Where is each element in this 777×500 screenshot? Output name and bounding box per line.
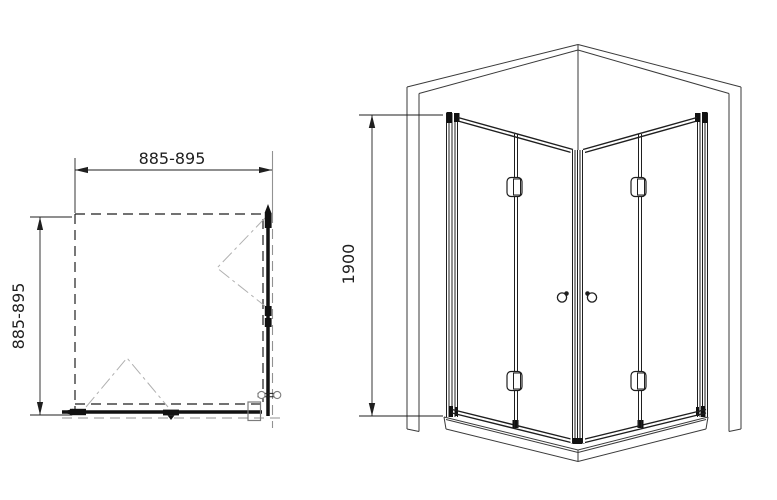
- center-corner-post: [571, 150, 586, 444]
- plan-door-swing-lines: [86, 218, 265, 407]
- plan-hinges: [62, 204, 272, 420]
- hinge-icon: [507, 372, 522, 391]
- knob-icon: [557, 291, 568, 302]
- door-frame-assembly: [447, 112, 708, 444]
- hinge-icon: [631, 178, 646, 197]
- hinge-icon: [265, 318, 272, 327]
- knob-icon: [258, 391, 265, 398]
- shower-enclosure-technical-drawing: 885-895 885-895: [0, 0, 777, 500]
- left-wall-profile: [447, 112, 460, 417]
- hinge-icon: [163, 410, 179, 416]
- dimension-arrow-up: [369, 115, 375, 128]
- drawing-svg: 885-895 885-895: [0, 0, 777, 500]
- hinge-icon: [70, 409, 86, 415]
- hinge-icon: [168, 415, 175, 420]
- plan-width-label: 885-895: [139, 149, 206, 168]
- right-wall-profile: [695, 112, 708, 417]
- knob-icon: [274, 391, 281, 398]
- hinge-icon: [265, 213, 272, 228]
- dimension-arrow-left: [75, 167, 88, 173]
- plan-walls: [62, 213, 281, 428]
- hinge-icon: [631, 372, 646, 391]
- hinge-icon: [265, 306, 272, 316]
- dimension-arrow-down: [369, 403, 375, 416]
- dimension-arrow-bottom: [37, 402, 43, 415]
- height-label: 1900: [339, 244, 358, 285]
- hinge-icon: [265, 204, 272, 213]
- dimension-arrow-top: [37, 217, 43, 230]
- plan-view: 885-895 885-895: [9, 149, 281, 428]
- knob-icon: [585, 291, 596, 302]
- dimension-arrow-right: [259, 167, 272, 173]
- plan-depth-label: 885-895: [9, 283, 28, 350]
- plan-door-panels: [62, 212, 268, 416]
- hinge-icon: [507, 178, 522, 197]
- height-dimension: 1900: [339, 115, 443, 416]
- plan-depth-dimension: 885-895: [9, 217, 72, 415]
- perspective-view: 1900: [339, 45, 741, 462]
- plan-width-dimension: 885-895: [75, 149, 273, 213]
